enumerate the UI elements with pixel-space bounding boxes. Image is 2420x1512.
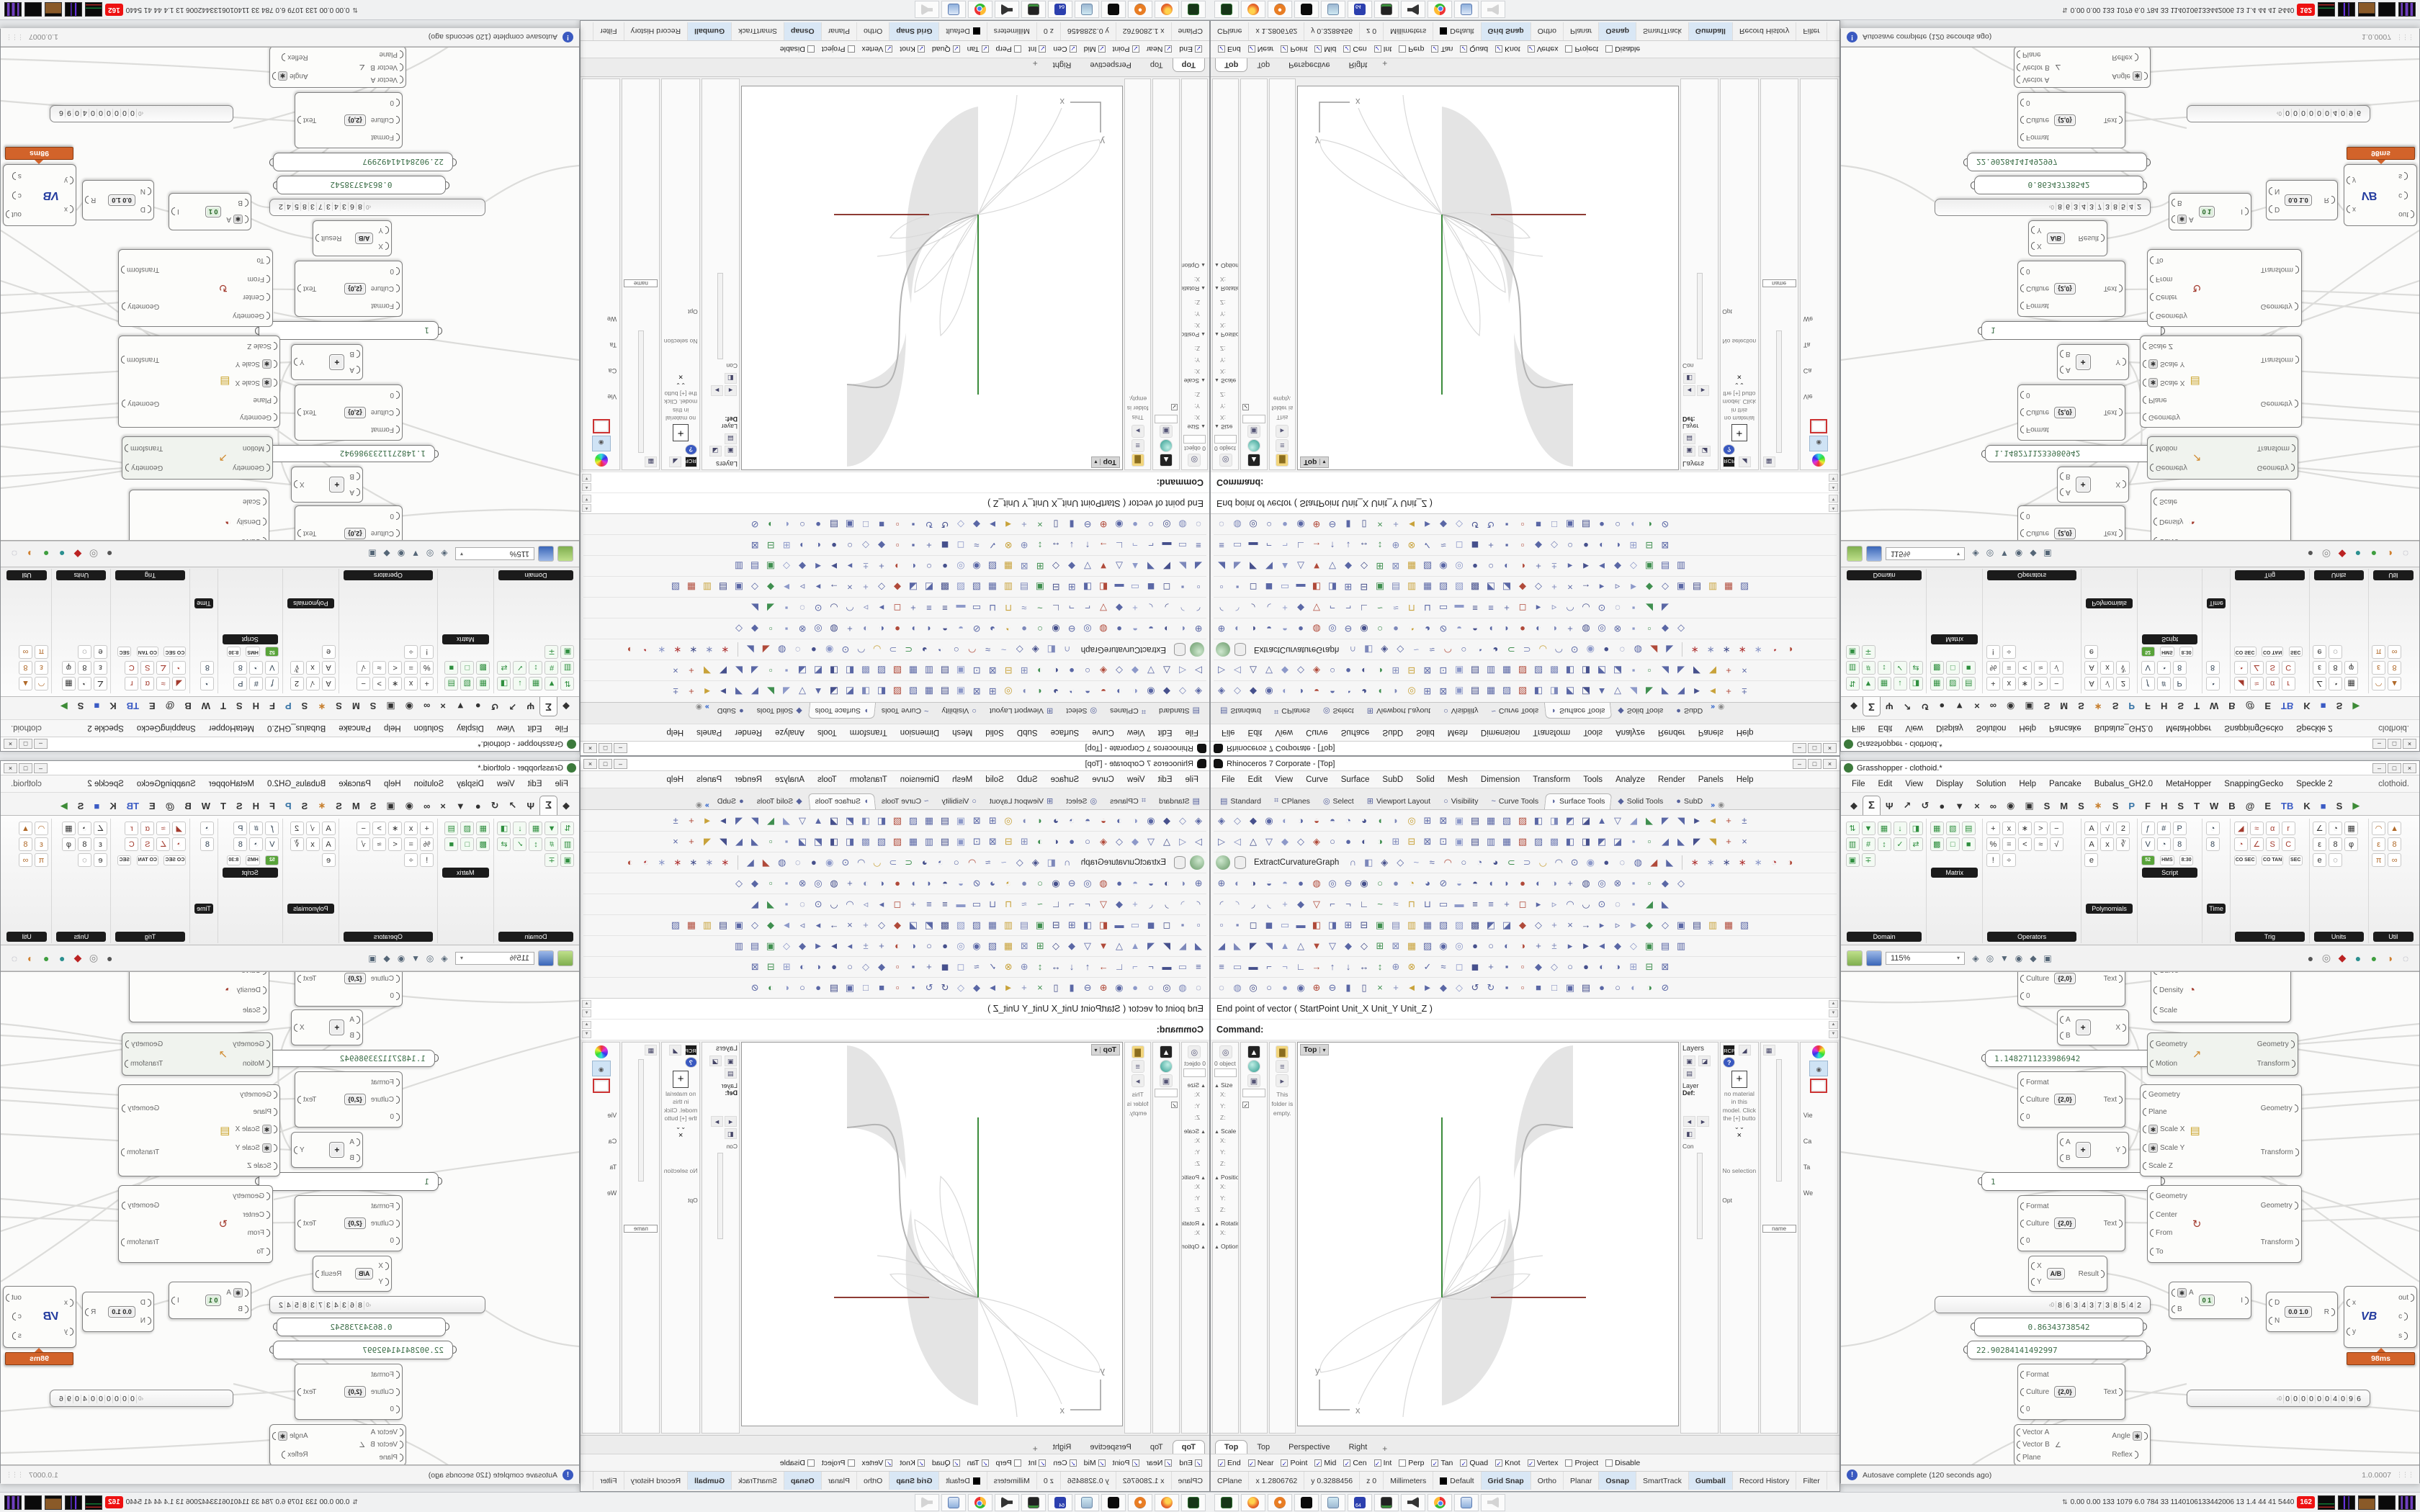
gh-component-remap[interactable]: D N 0.0 1.0 R bbox=[82, 1292, 154, 1332]
toolbar-icon[interactable]: ∗ bbox=[686, 855, 702, 870]
toolbar-icon[interactable]: ◜ bbox=[1214, 896, 1229, 912]
toolbar-icon[interactable]: ◥ bbox=[1143, 558, 1159, 574]
toolbar-icon[interactable]: > bbox=[372, 678, 386, 691]
toolbar-icon[interactable]: ◣ bbox=[1657, 600, 1673, 616]
toolbar-icon[interactable]: ∓ bbox=[545, 853, 559, 867]
toolbar-icon[interactable]: ▤ bbox=[1962, 678, 1976, 691]
toolbar-icon[interactable]: ◆ bbox=[763, 579, 779, 595]
gh-component-gate[interactable]: ✱A B 0 1 I bbox=[2169, 1282, 2251, 1319]
checkbox[interactable]: ✓ bbox=[918, 1459, 925, 1467]
menu-item[interactable]: SubD bbox=[1376, 726, 1410, 739]
status-field[interactable]: Record History bbox=[624, 22, 687, 40]
toolbar-icon[interactable]: ⊠ bbox=[747, 537, 763, 553]
help-icon[interactable]: ? bbox=[1723, 1057, 1735, 1068]
toolbar-icon[interactable]: ◻ bbox=[889, 600, 905, 616]
toolbar-icon[interactable]: ⊘ bbox=[1657, 980, 1673, 996]
status-field[interactable]: Grid Snap bbox=[889, 22, 938, 40]
osnap-toggle[interactable]: ✓Point bbox=[1281, 45, 1307, 54]
toolbar-icon[interactable]: ◑ bbox=[1610, 959, 1626, 975]
tab-camera[interactable]: Ca bbox=[1803, 1138, 1836, 1145]
toolbar-icon[interactable]: √ bbox=[2050, 662, 2063, 675]
gh-category-tab[interactable]: S bbox=[297, 798, 313, 815]
toolbar-icon[interactable]: ▮ bbox=[1340, 516, 1356, 532]
toolbar-icon[interactable]: φ bbox=[62, 837, 76, 851]
toolbar-icon[interactable]: ► bbox=[779, 917, 794, 933]
toolbar-icon[interactable]: ∩ bbox=[1059, 642, 1075, 657]
toolbar-icon[interactable]: ⊞ bbox=[1340, 579, 1356, 595]
gh-category-tab[interactable]: H bbox=[2156, 798, 2172, 815]
toolbar-icon[interactable]: ◌ bbox=[2399, 953, 2412, 964]
toolbar-icon[interactable]: ▽ bbox=[1080, 938, 1095, 954]
toolbar-icon[interactable]: ▽ bbox=[1610, 683, 1626, 699]
rhino-tab[interactable]: ▤Standard bbox=[1214, 703, 1268, 719]
toolbar-icon[interactable]: ⊞ bbox=[1016, 662, 1032, 678]
toolbar-icon[interactable]: ⊡ bbox=[969, 834, 985, 850]
toolbar-icon[interactable]: ⊂ bbox=[901, 855, 917, 870]
toolbar-icon[interactable]: ⊗ bbox=[1000, 537, 1016, 553]
toolbar-icon[interactable]: ◍ bbox=[1630, 642, 1646, 657]
toolbar-icon[interactable]: ► bbox=[985, 980, 1000, 996]
toolbar-icon[interactable]: ⊘ bbox=[747, 980, 763, 996]
toolbar-icon[interactable]: ▩ bbox=[858, 662, 874, 678]
toolbar-icon[interactable]: ◔ bbox=[2157, 837, 2171, 851]
close-icon[interactable]: × bbox=[664, 1131, 698, 1140]
toolbar-icon[interactable]: ¬ bbox=[1277, 959, 1293, 975]
toolbar-icon[interactable]: ◑ bbox=[1245, 876, 1261, 891]
rhino-tab[interactable]: ◎Select bbox=[1059, 793, 1103, 809]
menu-item[interactable]: Tools bbox=[811, 726, 843, 739]
toolbar-icon[interactable]: ○ bbox=[1562, 537, 1578, 553]
ribbon-group-label[interactable]: Matrix bbox=[442, 634, 489, 644]
toolbar-icon[interactable]: ◗ bbox=[1388, 683, 1404, 699]
menu-item[interactable]: View bbox=[1268, 726, 1299, 739]
gh-component-remap[interactable]: D N 0.0 1.0 R bbox=[82, 180, 154, 220]
taskbar-icon-chrome[interactable] bbox=[1428, 1494, 1452, 1511]
graduation-cap-icon[interactable]: ▲ bbox=[1247, 454, 1260, 467]
toolbar-icon[interactable]: ◠ bbox=[1551, 642, 1567, 657]
osnap-toggle[interactable]: Project bbox=[822, 45, 855, 54]
rhino-tab[interactable]: ⊞Viewport Layout bbox=[1361, 793, 1437, 809]
toolbar-icon[interactable]: ◈ bbox=[437, 953, 452, 963]
toolbar-icon[interactable]: ► bbox=[826, 558, 842, 574]
toolbar-icon[interactable]: φ bbox=[62, 662, 76, 675]
toolbar-icon[interactable]: ▦ bbox=[1721, 579, 1736, 595]
viewport-tab[interactable]: Right bbox=[1044, 1440, 1081, 1454]
toolbar-icon[interactable]: ◻ bbox=[1159, 579, 1175, 595]
gh-component-gate[interactable]: ✱A B 0 1 I bbox=[169, 1282, 251, 1319]
toolbar-icon[interactable]: ◆ bbox=[1127, 662, 1143, 678]
gh-category-tab[interactable]: ◉ bbox=[2002, 697, 2020, 715]
gh-category-tab[interactable]: S bbox=[231, 798, 248, 815]
toolbar-icon[interactable]: ▣ bbox=[842, 516, 858, 532]
toolbar-icon[interactable]: ∞ bbox=[19, 646, 32, 660]
toolbar-icon[interactable]: ◪ bbox=[905, 917, 921, 933]
toolbar-icon[interactable]: ◉ bbox=[1261, 813, 1277, 829]
toolbar-icon[interactable]: ◇ bbox=[1392, 855, 1408, 870]
toolbar-icon[interactable]: + bbox=[1016, 516, 1032, 532]
toolbar-icon[interactable]: ◕ bbox=[985, 621, 1000, 636]
sec-icon[interactable]: SEC bbox=[117, 855, 131, 865]
toolbar-icon[interactable]: ◖ bbox=[921, 621, 937, 636]
toolbar-icon[interactable]: ○ bbox=[921, 938, 937, 954]
toolbar-icon[interactable]: ▦ bbox=[1483, 683, 1499, 699]
object-name-field[interactable] bbox=[1183, 1068, 1206, 1077]
toolbar-icon[interactable]: ◉ bbox=[1293, 980, 1309, 996]
toolbar-icon[interactable]: ◒ bbox=[1451, 621, 1467, 636]
toolbar-icon[interactable]: ▥ bbox=[1404, 579, 1420, 595]
toolbar-icon[interactable]: ◇ bbox=[1012, 642, 1028, 657]
toolbar-icon[interactable]: ◆ bbox=[1657, 876, 1673, 891]
osnap-toggle[interactable]: ✓Point bbox=[1113, 45, 1139, 54]
toolbar-icon[interactable]: ◢ bbox=[1214, 938, 1229, 954]
toolbar-icon[interactable]: ▹ bbox=[858, 600, 874, 616]
ribbon-group-label[interactable]: Polynomials bbox=[2086, 904, 2133, 914]
toolbar-icon[interactable]: x bbox=[2100, 662, 2114, 675]
status-field[interactable]: Millimeters bbox=[987, 22, 1036, 40]
toolbar-icon[interactable]: ◩ bbox=[842, 683, 858, 699]
toolbar-icon[interactable]: ◎ bbox=[1983, 953, 1997, 963]
gh-category-tab[interactable]: S bbox=[231, 697, 248, 714]
toolbar-icon[interactable]: ▨ bbox=[1451, 917, 1467, 933]
toolbar-icon[interactable]: ○ bbox=[949, 855, 964, 870]
toolbar-icon[interactable]: ● bbox=[826, 959, 842, 975]
toolbar-icon[interactable]: ◍ bbox=[1175, 516, 1191, 532]
gh-category-tab[interactable]: ● bbox=[1934, 697, 1950, 714]
gumball-icon[interactable]: ◎ bbox=[1219, 1045, 1232, 1058]
toolbar-icon[interactable]: ◪ bbox=[826, 813, 842, 829]
toolbar-icon[interactable]: ◇ bbox=[1626, 558, 1641, 574]
menu-item[interactable]: Render bbox=[728, 726, 768, 739]
toolbar-icon[interactable]: ▸ bbox=[1562, 938, 1578, 954]
toolbar-icon[interactable]: ≈ bbox=[2034, 837, 2048, 851]
layer-copy-icon[interactable]: ▤ bbox=[725, 433, 737, 444]
toolbar-icon[interactable]: ◧ bbox=[1531, 683, 1546, 699]
gh-digit-scroller[interactable]: ‹0 86343738542 bbox=[269, 199, 485, 216]
toolbar-icon[interactable]: ▯ bbox=[1048, 980, 1064, 996]
checkbox[interactable]: ✓ bbox=[1314, 1459, 1322, 1467]
toolbar-icon[interactable]: ◖ bbox=[1032, 813, 1048, 829]
layer-paint-icon[interactable]: ◪ bbox=[1698, 1056, 1711, 1066]
viewport-tab[interactable]: Perspective bbox=[1080, 58, 1140, 72]
menu-item[interactable]: Transform bbox=[1526, 773, 1577, 786]
toolbar-icon[interactable]: ○ bbox=[1032, 876, 1048, 891]
color-wheel-icon[interactable] bbox=[595, 454, 608, 467]
toolbar-icon[interactable]: ∛ bbox=[2116, 662, 2130, 675]
image-icon[interactable]: ▣ bbox=[1247, 425, 1260, 438]
viewport-title-tab[interactable]: Top ▾ bbox=[1091, 456, 1120, 468]
toolbar-icon[interactable]: ● bbox=[55, 549, 68, 560]
gh-component-scale-nu[interactable]: Geometry Plane ✱Scale X ✱Scale Y Scale Z… bbox=[2140, 336, 2302, 428]
toolbar-icon[interactable]: e bbox=[322, 646, 336, 660]
gh-category-tab[interactable]: K bbox=[104, 697, 121, 714]
toolbar-icon[interactable]: ▮ bbox=[1340, 980, 1356, 996]
color-wheel-icon[interactable] bbox=[1812, 454, 1825, 467]
toolbar-icon[interactable]: ◓ bbox=[1467, 621, 1483, 636]
toolbar-icon[interactable]: ◩ bbox=[1562, 683, 1578, 699]
toolbar-icon[interactable]: ◐ bbox=[1531, 876, 1546, 891]
toolbar-icon[interactable]: 8 bbox=[2329, 662, 2342, 675]
toolbar-icon[interactable]: ▪ bbox=[1229, 917, 1245, 933]
toolbar-icon[interactable]: ◐ bbox=[1277, 683, 1293, 699]
gh-canvas[interactable]: Format Culture 0 {2,0} Text A B + X 1.14… bbox=[1, 971, 579, 1465]
toolbar-icon[interactable]: P bbox=[233, 678, 247, 691]
menu-item[interactable]: Dimension bbox=[894, 726, 946, 739]
checkbox[interactable]: ✓ bbox=[1431, 1459, 1438, 1467]
toolbar-icon[interactable]: ● bbox=[103, 549, 116, 560]
toolbar-icon[interactable]: ◣ bbox=[1175, 558, 1191, 574]
rhino-viewport[interactable]: y x Top ▾ bbox=[741, 86, 1123, 470]
toolbar-icon[interactable]: ◐ bbox=[1594, 959, 1610, 975]
toolbar-icon[interactable]: ◇ bbox=[1451, 516, 1467, 532]
toolbar-icon[interactable]: ⊂ bbox=[1503, 855, 1519, 870]
gh-category-tab[interactable]: ↺ bbox=[486, 797, 504, 815]
toolbar-icon[interactable]: ▼ bbox=[1095, 938, 1111, 954]
toolbar-icon[interactable]: ◎ bbox=[1159, 980, 1175, 996]
toolbar-icon[interactable]: ▤ bbox=[747, 938, 763, 954]
layer-paint-icon[interactable]: ◪ bbox=[709, 1056, 722, 1066]
toolbar-icon[interactable]: V bbox=[265, 662, 279, 675]
toolbar-icon[interactable]: ↓ bbox=[1340, 537, 1356, 553]
toolbar-icon[interactable]: ▭ bbox=[1229, 959, 1245, 975]
toolbar-icon[interactable]: ▲ bbox=[1127, 558, 1143, 574]
toolbar-icon[interactable]: ◢ bbox=[2234, 822, 2248, 835]
toolbar-icon[interactable]: ⊠ bbox=[1657, 959, 1673, 975]
toolbar-icon[interactable]: ⊘ bbox=[747, 516, 763, 532]
toolbar-icon[interactable]: V bbox=[2141, 662, 2155, 675]
yom-52-icon[interactable]: 52 bbox=[2141, 647, 2155, 657]
menu-item[interactable]: Solution bbox=[1970, 722, 2013, 735]
canvas-zoom-select[interactable]: 115%▾ bbox=[455, 548, 534, 561]
toolbar-icon[interactable]: ▪ bbox=[905, 537, 921, 553]
toolbar-icon[interactable]: ○ bbox=[1372, 876, 1388, 891]
taskbar-icon-notepad[interactable] bbox=[1075, 1, 1099, 19]
toolbar-icon[interactable]: ▨ bbox=[953, 917, 969, 933]
layer-new-icon[interactable]: ▣ bbox=[725, 446, 737, 456]
clock-830-icon[interactable]: 8:30 bbox=[227, 855, 241, 865]
toolbar-icon[interactable]: ▪ bbox=[1175, 917, 1191, 933]
toolbar-icon[interactable]: > bbox=[2034, 822, 2048, 835]
toolbar-icon[interactable]: ∗ bbox=[1734, 855, 1750, 870]
toolbar-icon[interactable]: ◢ bbox=[779, 683, 794, 699]
toolbar-icon[interactable]: ◆ bbox=[889, 579, 905, 595]
toolbar-icon[interactable]: ◆ bbox=[969, 516, 985, 532]
toolbar-icon[interactable]: e bbox=[2084, 853, 2098, 867]
toolbar-icon[interactable]: ◉ bbox=[1111, 516, 1127, 532]
gh-category-tab[interactable]: ■ bbox=[2316, 697, 2331, 714]
toolbar-icon[interactable]: ▪ bbox=[1499, 537, 1515, 553]
rhino-tab[interactable]: ⌗CPlanes bbox=[1268, 703, 1317, 719]
toolbar-icon[interactable]: ◉ bbox=[1143, 683, 1159, 699]
toolbar-icon[interactable]: ▸ bbox=[1531, 896, 1546, 912]
toolbar-icon[interactable]: ◧ bbox=[1361, 642, 1376, 657]
gh-component-addition[interactable]: A B + X bbox=[291, 1009, 363, 1045]
toolbar-icon[interactable]: ◇ bbox=[1356, 938, 1372, 954]
toolbar-icon[interactable]: ◄ bbox=[1705, 813, 1721, 829]
toolbar-icon[interactable]: ◑ bbox=[622, 855, 638, 870]
toolbar-icon[interactable]: ▪ bbox=[1626, 662, 1641, 678]
toolbar-icon[interactable]: e bbox=[94, 646, 107, 660]
toolbar-icon[interactable]: + bbox=[858, 917, 874, 933]
toolbar-icon[interactable]: + bbox=[1986, 822, 2000, 835]
osnap-toggle[interactable]: ✓Quad bbox=[1460, 1459, 1488, 1467]
menu-item[interactable]: Pancake bbox=[332, 778, 377, 791]
add-material-button[interactable]: + bbox=[673, 1071, 689, 1088]
toolbar-icon[interactable]: + bbox=[1016, 980, 1032, 996]
toolbar-icon[interactable]: ▧ bbox=[889, 662, 905, 678]
toolbar-icon[interactable]: ◻ bbox=[1245, 579, 1261, 595]
menu-item[interactable]: Mesh bbox=[1441, 773, 1474, 786]
section-scale[interactable]: Scale bbox=[1184, 377, 1199, 384]
toolbar-icon[interactable]: ◣ bbox=[763, 683, 779, 699]
panel-scrollbar[interactable] bbox=[638, 330, 644, 453]
toolbar-icon[interactable]: ◎ bbox=[1245, 516, 1261, 532]
toolbar-icon[interactable]: ▦ bbox=[1404, 938, 1420, 954]
toolbar-icon[interactable]: ◨ bbox=[858, 683, 874, 699]
toolbar-icon[interactable]: ∩ bbox=[1345, 855, 1361, 870]
gh-component-format-text[interactable]: Format Culture 0 {2,0} Text bbox=[295, 92, 403, 148]
osnap-toggle[interactable]: ✓Mid bbox=[1084, 45, 1106, 54]
toolbar-icon[interactable]: ≡ bbox=[1214, 537, 1229, 553]
toolbar-icon[interactable]: △ bbox=[1293, 558, 1309, 574]
toolbar-icon[interactable]: ► bbox=[1626, 579, 1641, 595]
toolbar-icon[interactable]: ◢ bbox=[779, 813, 794, 829]
toolbar-icon[interactable]: ◆ bbox=[874, 537, 889, 553]
tab-view[interactable]: Vie bbox=[584, 393, 617, 400]
gh-category-tab[interactable]: ■ bbox=[89, 798, 104, 815]
toolbar-icon[interactable]: ◆ bbox=[2026, 549, 2040, 559]
toolbar-icon[interactable]: ▣ bbox=[2040, 953, 2055, 963]
toolbar-icon[interactable]: ● bbox=[1111, 621, 1127, 636]
toolbar-icon[interactable]: ⊂ bbox=[1503, 642, 1519, 657]
toolbar-icon[interactable]: ƒ bbox=[265, 822, 279, 835]
toolbar-icon[interactable]: ● bbox=[1515, 621, 1531, 636]
toolbar-icon[interactable]: ▨ bbox=[953, 579, 969, 595]
toolbar-icon[interactable]: ◇ bbox=[1175, 683, 1191, 699]
menu-item[interactable]: Edit bbox=[521, 722, 549, 735]
menu-item[interactable]: View bbox=[490, 722, 521, 735]
toolbar-icon[interactable]: ≈ bbox=[1435, 537, 1451, 553]
next-arrow-icon[interactable]: ► bbox=[711, 1116, 723, 1127]
toolbar-icon[interactable]: ▽ bbox=[1261, 662, 1277, 678]
toolbar-icon[interactable]: ◤ bbox=[1159, 558, 1175, 574]
toolbar-icon[interactable]: ◢ bbox=[1191, 558, 1206, 574]
gh-component-division[interactable]: X Y A/B Result bbox=[2028, 1256, 2107, 1292]
toolbar-icon[interactable]: ◆ bbox=[1293, 600, 1309, 616]
toolbar-icon[interactable]: ● bbox=[1578, 537, 1594, 553]
toolbar-icon[interactable]: ◇ bbox=[1175, 813, 1191, 829]
gh-category-tab[interactable]: ▣ bbox=[2020, 797, 2038, 815]
toolbar-icon[interactable]: ◉ bbox=[1293, 516, 1309, 532]
toolbar-icon[interactable]: ▫ bbox=[763, 834, 779, 850]
toolbar-icon[interactable]: ◤ bbox=[715, 834, 731, 850]
toolbar-icon[interactable]: ○ bbox=[1143, 980, 1159, 996]
toolbar-icon[interactable]: ▯ bbox=[1048, 516, 1064, 532]
toolbar-icon[interactable]: ◎ bbox=[953, 558, 969, 574]
toolbar-icon[interactable]: ▹ bbox=[794, 579, 810, 595]
toolbar-icon[interactable]: ◌ bbox=[78, 646, 91, 660]
maximize-button[interactable]: □ bbox=[1808, 744, 1821, 754]
toolbar-icon[interactable]: ▧ bbox=[1946, 678, 1960, 691]
toolbar-icon[interactable]: ◖ bbox=[1483, 621, 1499, 636]
toolbar-icon[interactable]: ▮ bbox=[1064, 980, 1080, 996]
menu-item[interactable]: Analyze bbox=[768, 726, 811, 739]
toolbar-icon[interactable]: + bbox=[1562, 621, 1578, 636]
section-position[interactable]: Position bbox=[1181, 331, 1199, 338]
toolbar-icon[interactable]: ◈ bbox=[1309, 834, 1325, 850]
toolbar-icon[interactable]: ¬ bbox=[1277, 537, 1293, 553]
osnap-toggle[interactable]: ✓Near bbox=[1147, 1459, 1173, 1467]
toolbar-icon[interactable]: ◑ bbox=[1546, 876, 1562, 891]
toolbar-icon[interactable]: ▪ bbox=[779, 876, 794, 891]
tab-wallpaper[interactable]: We bbox=[1803, 1189, 1836, 1197]
toolbar-icon[interactable]: ▼ bbox=[545, 678, 559, 691]
menu-item[interactable]: Solid bbox=[1410, 726, 1441, 739]
toolbar-icon[interactable]: ◆ bbox=[1610, 558, 1626, 574]
toolbar-icon[interactable]: ▤ bbox=[1689, 579, 1705, 595]
render-sphere-icon[interactable] bbox=[1160, 1060, 1173, 1073]
clock-830-icon[interactable]: 8:30 bbox=[2179, 855, 2193, 865]
toolbar-icon[interactable]: ⇄ bbox=[498, 662, 511, 675]
toolbar-icon[interactable]: ▪ bbox=[1499, 980, 1515, 996]
toolbar-icon[interactable]: ◉ bbox=[1111, 980, 1127, 996]
toolbar-icon[interactable]: ● bbox=[1127, 516, 1143, 532]
toolbar-icon[interactable]: ○ bbox=[921, 558, 937, 574]
status-field[interactable]: Record History bbox=[624, 1472, 687, 1490]
toolbar-icon[interactable]: ▭ bbox=[1175, 537, 1191, 553]
toolbar-icon[interactable]: ◎ bbox=[1594, 876, 1610, 891]
toolbar-icon[interactable]: ◍ bbox=[1229, 980, 1245, 996]
toolbar-icon[interactable]: ▦ bbox=[985, 579, 1000, 595]
toolbar-icon[interactable]: ε bbox=[94, 662, 107, 675]
hms-icon[interactable]: HMS bbox=[2160, 855, 2174, 865]
toolbar-icon[interactable]: ◢ bbox=[1657, 662, 1673, 678]
toolbar-icon[interactable]: ◩ bbox=[1562, 813, 1578, 829]
gh-component-orient[interactable]: Geometry Center From To ↻ Geometry Trans… bbox=[2147, 249, 2302, 327]
toolbar-icon[interactable]: ◢ bbox=[763, 600, 779, 616]
toolbar-icon[interactable]: ⊠ bbox=[969, 813, 985, 829]
section-rotation[interactable]: Rotation bbox=[1181, 285, 1199, 292]
viewport-tab[interactable]: Top bbox=[1173, 1440, 1205, 1454]
monitor-icon[interactable]: ▦ bbox=[1763, 456, 1775, 467]
toolbar-icon[interactable]: ● bbox=[2367, 953, 2380, 964]
toolbar-icon[interactable]: ▬ bbox=[1245, 959, 1261, 975]
toolbar-icon[interactable]: ≈ bbox=[980, 642, 996, 657]
toolbar-icon[interactable]: ↕ bbox=[529, 662, 543, 675]
toolbar-icon[interactable]: ▸ bbox=[874, 600, 889, 616]
toolbar-icon[interactable]: ▧ bbox=[889, 834, 905, 850]
toolbar-icon[interactable]: ◎ bbox=[1325, 621, 1340, 636]
gh-category-tab[interactable]: S bbox=[2107, 697, 2124, 714]
toolbar-icon[interactable]: ◎ bbox=[1404, 813, 1420, 829]
taskbar-icon-scroll[interactable] bbox=[1454, 1, 1479, 19]
toolbar-icon[interactable]: # bbox=[545, 837, 559, 851]
osnap-toggle[interactable]: ✓End bbox=[1179, 1459, 1202, 1467]
toolbar-icon[interactable]: ◎ bbox=[2320, 548, 2333, 560]
expand-arrow-icon[interactable]: ▸ bbox=[1276, 425, 1289, 438]
osnap-toggle[interactable]: ✓End bbox=[1218, 45, 1241, 54]
toolbar-icon[interactable]: ▥ bbox=[1705, 917, 1721, 933]
viewport-tab[interactable]: Top bbox=[1215, 58, 1247, 72]
toolbar-icon[interactable]: ◑ bbox=[1515, 938, 1531, 954]
toolbar-icon[interactable]: ○ bbox=[1562, 959, 1578, 975]
gh-component-remap[interactable]: D N 0.0 1.0 R bbox=[2266, 1292, 2338, 1332]
toolbar-icon[interactable]: ◠ bbox=[842, 896, 858, 912]
rhino-tab[interactable]: ●SubD bbox=[711, 703, 750, 719]
toolbar-icon[interactable]: ▲ bbox=[1594, 813, 1610, 829]
toolbar-icon[interactable]: ◇ bbox=[1546, 959, 1562, 975]
toolbar-icon[interactable]: ± bbox=[1736, 683, 1752, 699]
toolbar-icon[interactable]: ⊞ bbox=[1372, 558, 1388, 574]
